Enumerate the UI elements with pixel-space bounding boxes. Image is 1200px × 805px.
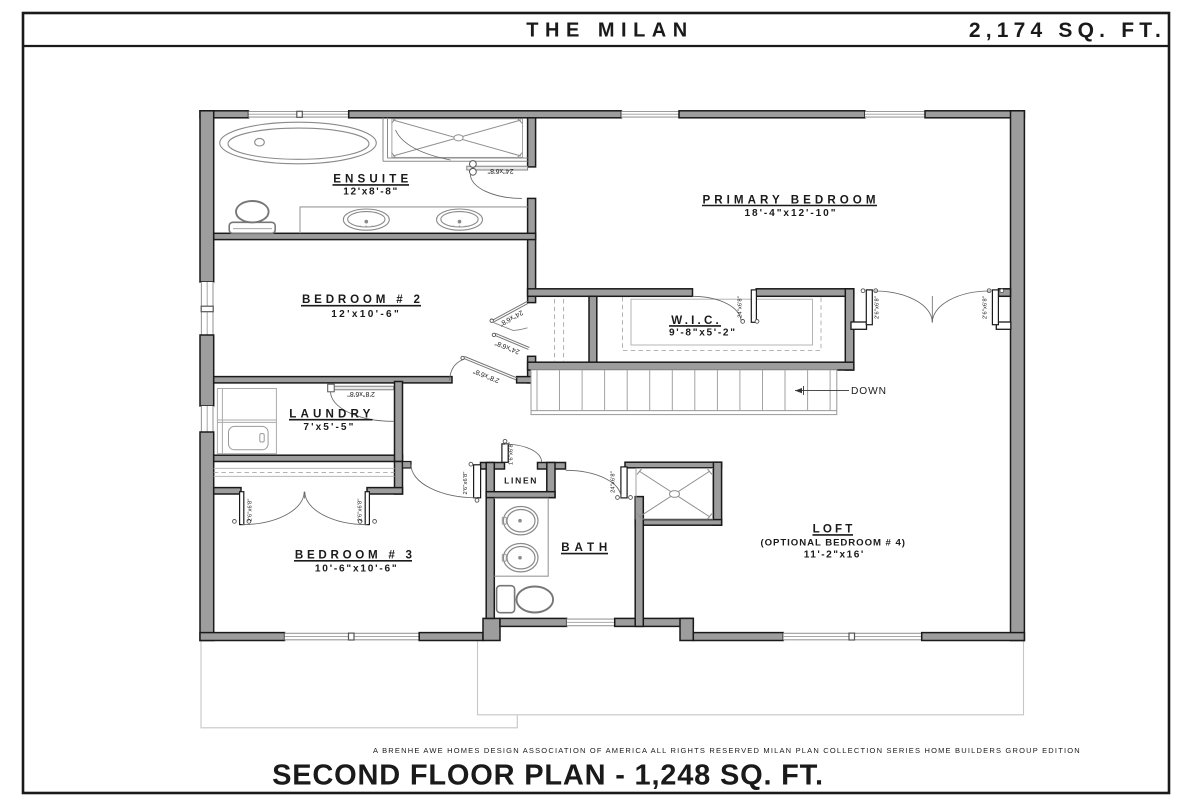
svg-text:2,174 SQ. FT.: 2,174 SQ. FT. <box>969 19 1166 42</box>
svg-text:1'6"x6'8": 1'6"x6'8" <box>508 442 514 465</box>
svg-text:2'6"x6'8": 2'6"x6'8" <box>982 296 988 319</box>
svg-text:12'x8'-8": 12'x8'-8" <box>343 187 397 198</box>
svg-text:12'x10'-6": 12'x10'-6" <box>331 309 399 320</box>
svg-text:LAUNDRY: LAUNDRY <box>289 407 370 420</box>
svg-text:24"x6'8": 24"x6'8" <box>610 471 616 493</box>
svg-text:11'-2"x16': 11'-2"x16' <box>804 549 864 560</box>
svg-text:24"x6'8": 24"x6'8" <box>737 296 743 318</box>
svg-text:DOWN: DOWN <box>851 386 886 397</box>
svg-text:10'-6"x10'-6": 10'-6"x10'-6" <box>315 563 397 574</box>
svg-text:2'6"x6'8": 2'6"x6'8" <box>248 498 254 521</box>
svg-text:2'8"x6'8": 2'8"x6'8" <box>347 390 375 397</box>
svg-text:2'6"x6'8": 2'6"x6'8" <box>463 471 469 494</box>
svg-text:2'6"x6'8": 2'6"x6'8" <box>875 296 881 319</box>
svg-text:(OPTIONAL BEDROOM # 4): (OPTIONAL BEDROOM # 4) <box>760 538 905 549</box>
svg-text:7'x5'-5": 7'x5'-5" <box>303 422 353 433</box>
svg-text:THE MILAN: THE MILAN <box>526 20 693 42</box>
svg-text:LINEN: LINEN <box>504 476 536 486</box>
svg-text:SECOND FLOOR PLAN - 1,248 SQ.: SECOND FLOOR PLAN - 1,248 SQ. FT. <box>272 760 824 792</box>
svg-text:24"x6'8": 24"x6'8" <box>487 167 514 174</box>
svg-text:A BRENHE AWE HOMES DESIGN ASSO: A BRENHE AWE HOMES DESIGN ASSOCIATION OF… <box>373 746 1081 755</box>
svg-text:2'6"x6'8": 2'6"x6'8" <box>357 498 363 521</box>
